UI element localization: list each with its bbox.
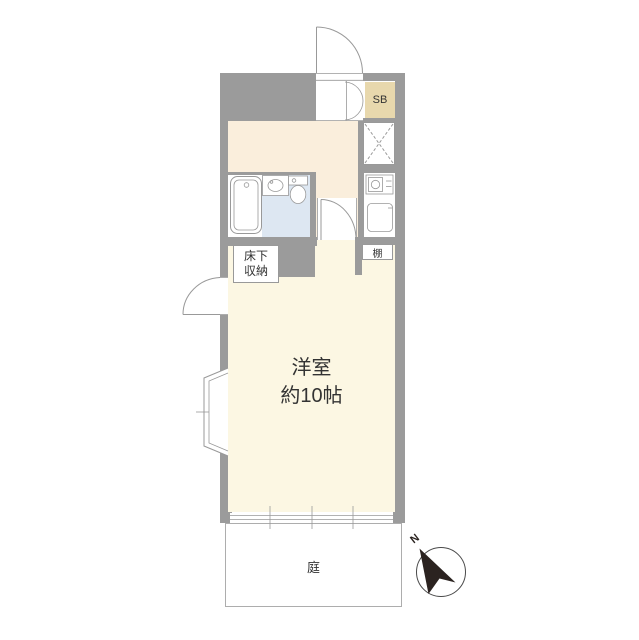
main-room-size: 約10帖 (280, 382, 342, 410)
wall-right (395, 73, 405, 523)
bay-window (196, 368, 228, 456)
compass-north-label: N (404, 529, 425, 550)
wall-bath-right (310, 172, 316, 238)
floor-plan: SB 床下 収納 棚 庭 洋室 約10帖 N (0, 0, 639, 640)
entrance-door (316, 27, 363, 80)
wall-left-upper (220, 73, 228, 277)
shoe-box: SB (365, 82, 395, 118)
main-room-label: 洋室 約10帖 (228, 350, 395, 414)
kitchen-fixture-floor (364, 172, 395, 237)
underfloor-storage-label-2: 収納 (244, 264, 268, 279)
shelf-label: 棚 (373, 245, 383, 260)
washer-space (363, 122, 395, 165)
main-room-name: 洋室 (292, 354, 332, 382)
shoe-box-label: SB (373, 94, 388, 106)
underfloor-storage: 床下 収納 (233, 245, 279, 283)
bathroom-floor (262, 175, 310, 237)
wall-top-left (220, 73, 316, 81)
wall-stub-shelf (355, 237, 362, 275)
wall-bottom-right (393, 512, 405, 523)
wall-block-center (277, 237, 315, 277)
shelf: 棚 (362, 244, 393, 260)
entrance-floor (316, 81, 363, 121)
wall-left-mid (220, 315, 228, 377)
wall-bath-top (228, 172, 312, 175)
wall-under-washer (363, 165, 395, 173)
compass (417, 548, 466, 597)
west-door (183, 278, 228, 315)
wall-bottom-left (220, 512, 232, 523)
compass-needle (420, 549, 456, 595)
doorway-floor (317, 198, 357, 240)
wall-block-top-left (228, 81, 316, 121)
garden: 庭 (225, 523, 402, 607)
garden-label: 庭 (226, 558, 401, 574)
underfloor-storage-label-1: 床下 (244, 249, 268, 264)
